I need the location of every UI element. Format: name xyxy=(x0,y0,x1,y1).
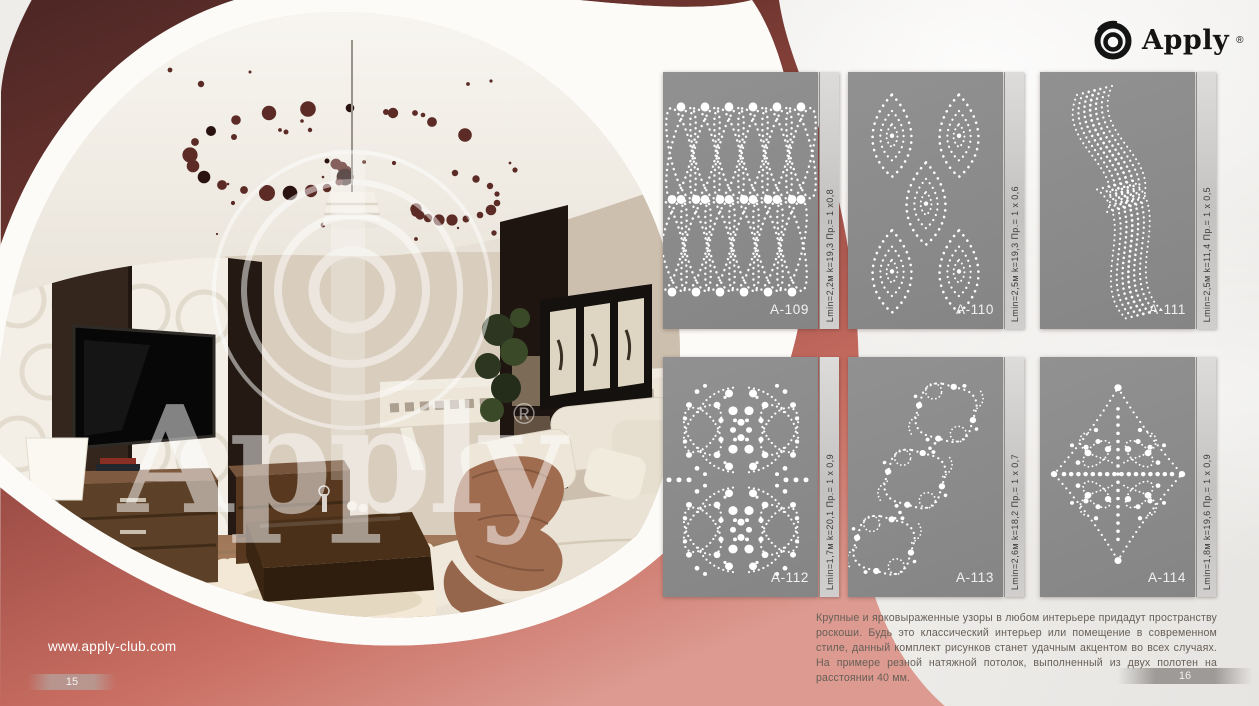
pattern-spec-strip-a109: Lmin=2,2м k=19,3 Пр.= 1 х0,8 xyxy=(819,72,839,329)
pattern-spec: Lmin=2,6м k=18,2 Пр.= 1 х 0,7 xyxy=(1010,447,1020,597)
apply-logo-icon xyxy=(1091,18,1135,62)
pattern-card-id: A-109 xyxy=(770,302,809,317)
pattern-card-a112: A-112 xyxy=(663,357,818,597)
pattern-spec-strip-a113: Lmin=2,6м k=18,2 Пр.= 1 х 0,7 xyxy=(1004,357,1024,597)
brand-name: Apply xyxy=(1142,25,1229,56)
pattern-card-a111: A-111 xyxy=(1040,72,1195,329)
pattern-graphic-a113 xyxy=(848,357,1003,597)
pattern-spec: Lmin=2,5м k=19,3 Пр.= 1 х 0,6 xyxy=(1010,179,1020,329)
registered-mark: ® xyxy=(1236,35,1243,46)
pattern-graphic-a109 xyxy=(663,72,818,329)
page-number-left: 15 xyxy=(28,674,116,690)
pattern-card-id: A-114 xyxy=(1148,570,1186,585)
pattern-spec: Lmin=1,7м k=20,1 Пр.= 1 х 0,9 xyxy=(825,447,835,597)
pattern-graphic-a114 xyxy=(1040,357,1195,597)
pattern-graphic-a112 xyxy=(663,357,818,597)
pattern-spec-strip-a111: Lmin=2,5м k=11,4 Пр.= 1 х 0,5 xyxy=(1196,72,1216,329)
brand-logo: Apply ® xyxy=(1091,18,1244,62)
pattern-card-id: A-113 xyxy=(956,570,994,585)
website-link[interactable]: www.apply-club.com xyxy=(48,639,176,654)
pattern-spec-strip-a112: Lmin=1,7м k=20,1 Пр.= 1 х 0,9 xyxy=(819,357,839,597)
watermark-text: Apply xyxy=(116,373,570,547)
page-number-right: 16 xyxy=(1118,668,1252,684)
pattern-graphic-a110 xyxy=(848,72,1003,329)
pattern-card-a109: A-109 xyxy=(663,72,818,329)
pattern-spec: Lmin=1,8м k=19,6 Пр.= 1 х 0,9 xyxy=(1202,447,1212,597)
pattern-card-a114: A-114 xyxy=(1040,357,1195,597)
pattern-graphic-a111 xyxy=(1040,72,1195,329)
triptych-prints xyxy=(550,298,644,396)
pattern-spec: Lmin=2,2м k=19,3 Пр.= 1 х0,8 xyxy=(825,182,835,329)
pattern-spec-strip-a110: Lmin=2,5м k=19,3 Пр.= 1 х 0,6 xyxy=(1004,72,1024,329)
watermark-registered-icon: ® xyxy=(513,398,535,431)
pattern-card-id: A-111 xyxy=(1149,302,1186,317)
pattern-card-a113: A-113 xyxy=(848,357,1003,597)
pattern-card-id: A-112 xyxy=(771,570,809,585)
pattern-spec-strip-a114: Lmin=1,8м k=19,6 Пр.= 1 х 0,9 xyxy=(1196,357,1216,597)
pattern-spec: Lmin=2,5м k=11,4 Пр.= 1 х 0,5 xyxy=(1202,180,1212,329)
pattern-card-id: A-110 xyxy=(956,302,994,317)
pattern-card-a110: A-110 xyxy=(848,72,1003,329)
catalog-page: Apply ® Apply ® A-109 Lmin=2,2м k=19,3 П… xyxy=(0,0,1259,706)
